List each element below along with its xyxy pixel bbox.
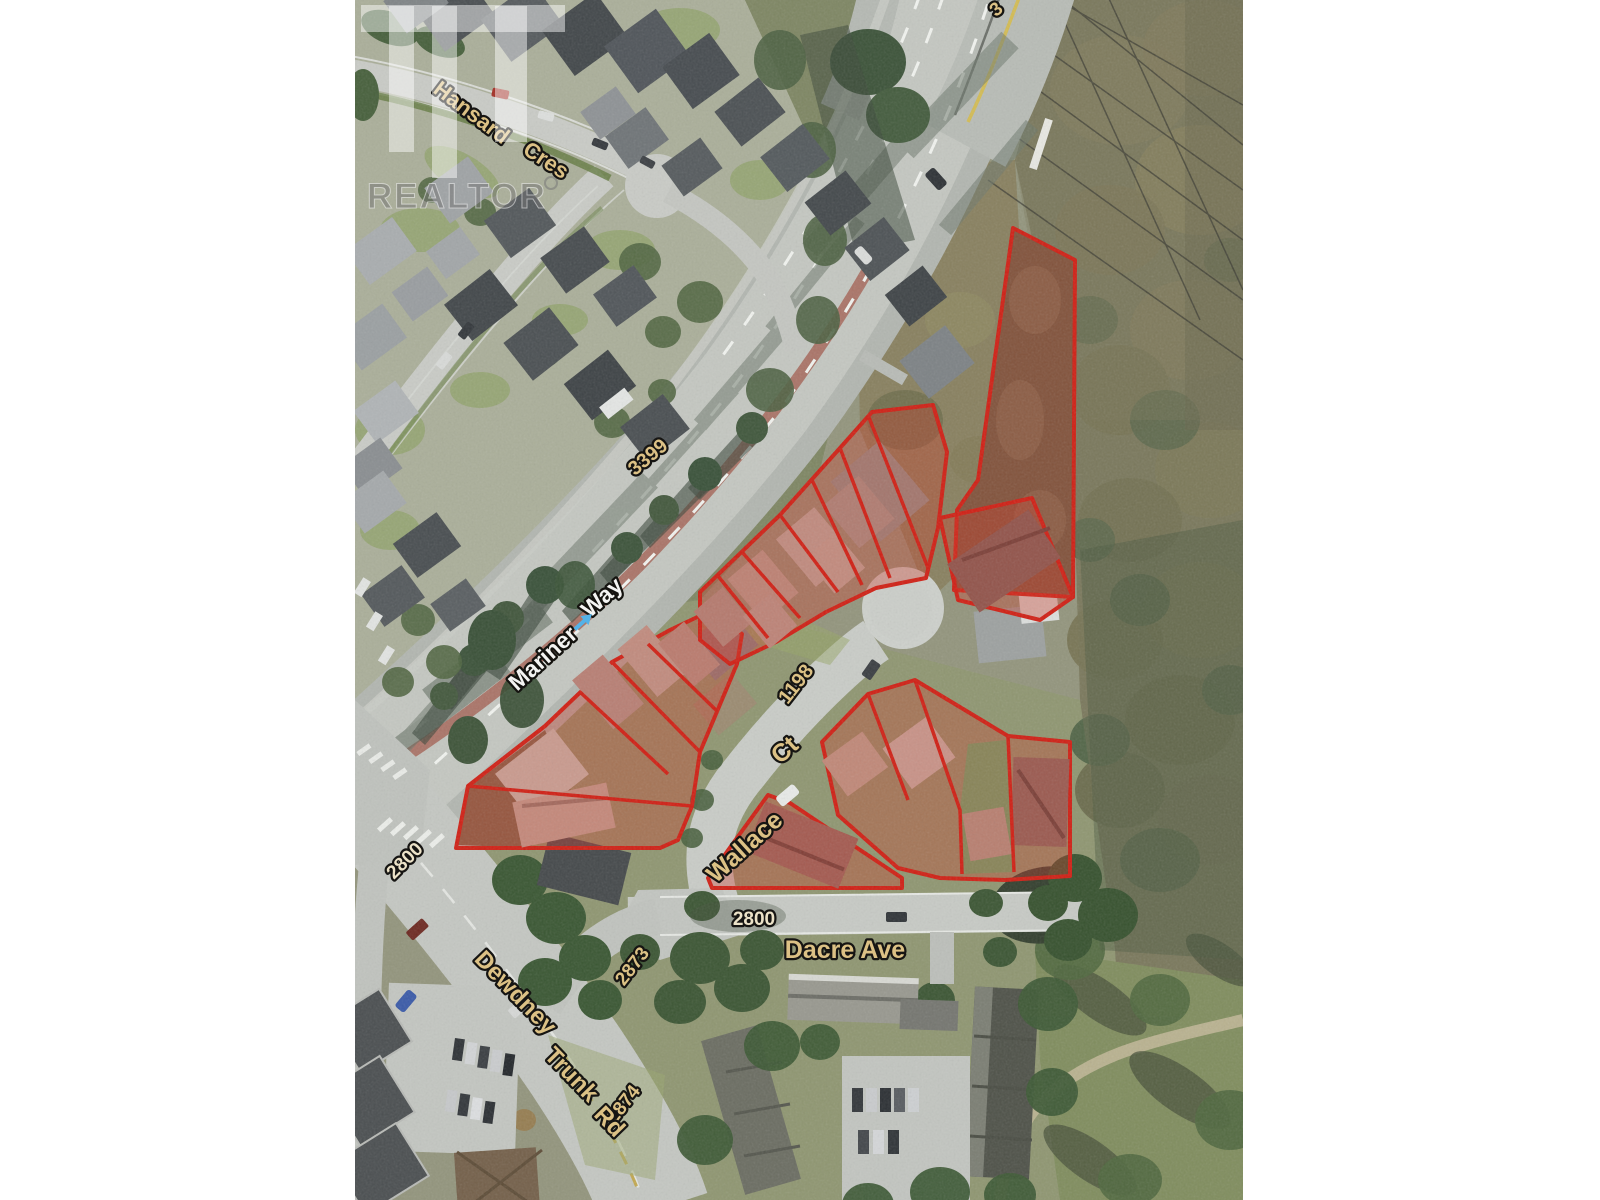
svg-text:REALTOR: REALTOR [367, 177, 547, 216]
svg-text:Dacre Ave: Dacre Ave [785, 936, 906, 964]
svg-text:2800: 2800 [733, 909, 775, 930]
